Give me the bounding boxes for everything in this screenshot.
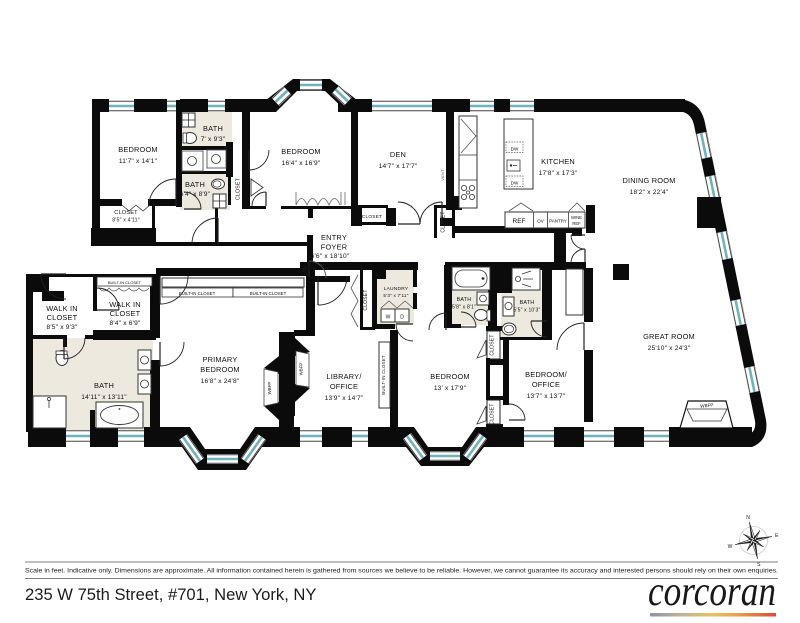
svg-text:BEDROOM: BEDROOM	[281, 147, 321, 156]
svg-text:corcoran: corcoran	[648, 569, 776, 615]
svg-text:11'7" x 14'1": 11'7" x 14'1"	[119, 158, 158, 165]
svg-text:25'10" x 24'3": 25'10" x 24'3"	[648, 345, 691, 352]
svg-text:CLOSET: CLOSET	[47, 313, 78, 322]
svg-text:BATH: BATH	[94, 381, 114, 390]
svg-text:WINE: WINE	[571, 215, 582, 220]
svg-text:BATH: BATH	[520, 300, 535, 306]
svg-text:OFFICE: OFFICE	[532, 380, 560, 389]
svg-text:BEDROOM/: BEDROOM/	[525, 370, 568, 379]
svg-text:6'4" x 8'9": 6'4" x 8'9"	[180, 191, 210, 198]
svg-text:8'4" x 6'9": 8'4" x 6'9"	[109, 320, 140, 327]
svg-text:6'6" x 18'10": 6'6" x 18'10"	[311, 253, 350, 260]
svg-text:KITCHEN: KITCHEN	[541, 157, 575, 166]
svg-text:8'5" x 9'3": 8'5" x 9'3"	[46, 324, 77, 331]
svg-text:CLOSET: CLOSET	[363, 289, 369, 310]
svg-text:5'8" x 8'1": 5'8" x 8'1"	[452, 305, 476, 311]
svg-text:7' x 9'3": 7' x 9'3"	[201, 136, 226, 143]
svg-text:BEDROOM: BEDROOM	[200, 365, 240, 374]
svg-text:DINING ROOM: DINING ROOM	[622, 176, 675, 185]
svg-text:WALK IN: WALK IN	[46, 304, 78, 313]
svg-text:BUILT-IN CLOSET: BUILT-IN CLOSET	[381, 355, 386, 395]
svg-text:PRIMARY: PRIMARY	[203, 355, 238, 364]
svg-text:13'9" x 14'7": 13'9" x 14'7"	[325, 395, 364, 402]
svg-text:CLOSET: CLOSET	[114, 210, 138, 216]
svg-text:CLOSET: CLOSET	[441, 211, 447, 232]
svg-text:LAUNDRY: LAUNDRY	[384, 286, 409, 292]
svg-text:14'11" x 13'11": 14'11" x 13'11"	[81, 394, 127, 401]
svg-text:13' x 17'9": 13' x 17'9"	[434, 385, 467, 392]
svg-text:OV: OV	[537, 219, 544, 224]
svg-text:16'8" x 24'8": 16'8" x 24'8"	[201, 378, 240, 385]
svg-text:WBFP: WBFP	[299, 363, 304, 376]
svg-text:18'2" x 22'4": 18'2" x 22'4"	[630, 189, 669, 196]
svg-text:BEDROOM: BEDROOM	[430, 372, 470, 381]
svg-text:13'7" x 13'7": 13'7" x 13'7"	[527, 393, 566, 400]
svg-text:CLOSET: CLOSET	[490, 334, 496, 355]
svg-text:PANTRY: PANTRY	[549, 219, 567, 224]
svg-text:5'3" x 7'11": 5'3" x 7'11"	[383, 293, 408, 298]
svg-text:REF: REF	[572, 221, 581, 226]
svg-text:N: N	[746, 515, 750, 521]
svg-text:17'8" x 17'3": 17'8" x 17'3"	[539, 170, 578, 177]
svg-text:D: D	[400, 315, 404, 321]
svg-text:BUILT-IN CLOSET: BUILT-IN CLOSET	[108, 280, 142, 285]
svg-text:W: W	[386, 315, 391, 321]
svg-text:CLOSET: CLOSET	[110, 309, 141, 318]
svg-text:DW: DW	[511, 147, 519, 152]
svg-text:OFFICE: OFFICE	[330, 382, 358, 391]
svg-text:CLOSET: CLOSET	[362, 214, 382, 220]
svg-text:GREAT ROOM: GREAT ROOM	[643, 332, 695, 341]
svg-text:14'7" x 17'7": 14'7" x 17'7"	[379, 163, 418, 170]
svg-text:235 W 75th Street, #701, New Y: 235 W 75th Street, #701, New York, NY	[25, 585, 316, 604]
svg-text:ENTRY: ENTRY	[321, 233, 347, 242]
svg-text:S: S	[757, 562, 761, 568]
svg-text:BEDROOM: BEDROOM	[118, 145, 158, 154]
svg-text:BUILT-IN CLOSET: BUILT-IN CLOSET	[250, 291, 287, 296]
svg-text:FOYER: FOYER	[321, 243, 347, 252]
svg-text:WBFP: WBFP	[267, 382, 272, 395]
svg-text:CLOSET: CLOSET	[236, 177, 242, 200]
svg-text:16'4" x 16'9": 16'4" x 16'9"	[282, 160, 321, 167]
svg-text:E: E	[775, 533, 779, 539]
svg-text:DEN: DEN	[390, 150, 406, 159]
svg-text:DW: DW	[511, 181, 519, 186]
svg-text:BATH: BATH	[457, 297, 472, 303]
svg-text:W: W	[728, 544, 733, 550]
svg-text:LIBRARY/: LIBRARY/	[326, 372, 362, 381]
svg-text:8'5" x 4'11": 8'5" x 4'11"	[112, 218, 140, 224]
svg-text:BUILT-IN CLOSET: BUILT-IN CLOSET	[179, 291, 216, 296]
svg-text:BATH: BATH	[185, 180, 205, 189]
svg-text:WALK IN: WALK IN	[109, 300, 141, 309]
svg-text:5'5" x 10'3": 5'5" x 10'3"	[513, 308, 540, 314]
svg-text:REF: REF	[513, 218, 526, 225]
svg-text:CLOSET: CLOSET	[490, 403, 496, 424]
svg-text:BATH: BATH	[203, 124, 223, 133]
svg-text:VENT: VENT	[440, 169, 445, 181]
